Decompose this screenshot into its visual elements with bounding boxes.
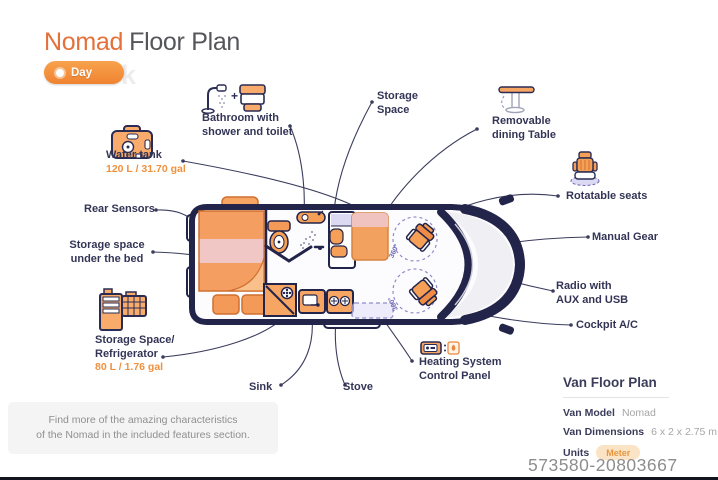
storage-space-line2: Space	[377, 104, 418, 118]
plus-icon: +	[231, 89, 238, 103]
label-radio: Radio with AUX and USB	[556, 280, 628, 307]
heating-system-zone	[352, 303, 393, 318]
storage-under-bed-line1: Storage space	[62, 239, 152, 253]
water-tank-name: Water tank	[106, 149, 186, 163]
storage-under-bed-line2: under the bed	[62, 253, 152, 267]
heating-panel-icon	[421, 342, 459, 354]
seat-icon	[571, 152, 599, 186]
label-heating: Heating System Control Panel	[419, 356, 502, 383]
label-fridge: Storage Space/ Refrigerator 80 L / 1.76 …	[95, 334, 174, 374]
van-model-value: Nomad	[622, 407, 656, 419]
heating-line2: Control Panel	[419, 370, 502, 384]
refrigerator-icon	[100, 289, 146, 330]
label-rotatable-seats: Rotatable seats	[566, 190, 647, 204]
info-box-line2: of the Nomad in the included features se…	[36, 428, 250, 443]
corner-cabinet	[264, 284, 296, 316]
label-cockpit-ac: Cockpit A/C	[576, 319, 638, 333]
van-dimensions-label: Van Dimensions	[563, 426, 644, 438]
van-dimensions-value: 6 x 2 x 2.75 m	[651, 426, 717, 438]
dining-table-line2: dining Table	[492, 129, 556, 143]
label-water-tank: Water tank 120 L / 31.70 gal	[106, 149, 186, 176]
label-stove: Stove	[343, 381, 373, 395]
bathroom-sink-counter	[297, 211, 325, 223]
label-storage-space: Storage Space	[377, 90, 418, 117]
dining-table-icon	[499, 87, 534, 113]
water-tank-capacity: 120 L / 31.70 gal	[106, 163, 186, 176]
dinette-bench	[329, 212, 355, 268]
van-model-label: Van Model	[563, 407, 615, 419]
label-storage-under-bed: Storage space under the bed	[62, 239, 152, 266]
side-mirror	[498, 323, 515, 336]
label-sink: Sink	[249, 381, 272, 395]
label-bathroom: Bathroom with shower and toilet	[202, 112, 292, 139]
spec-row-van-model: Van Model Nomad	[563, 407, 715, 419]
label-manual-gear: Manual Gear	[592, 231, 658, 245]
serial-number: 573580-20803667	[528, 455, 678, 476]
kitchen-sink-unit	[299, 290, 325, 313]
radio-line1: Radio with	[556, 280, 628, 294]
info-box-line1: Find more of the amazing characteristics	[48, 413, 237, 428]
label-dining-table: Removable dining Table	[492, 115, 556, 142]
dining-table-line1: Removable	[492, 115, 556, 129]
storage-space-line1: Storage	[377, 90, 418, 104]
stove-unit	[327, 290, 353, 313]
heating-line1: Heating System	[419, 356, 502, 370]
shower-icon	[202, 85, 226, 113]
radio-line2: AUX and USB	[556, 294, 628, 308]
fridge-line2: Refrigerator	[95, 348, 174, 362]
bathroom-line2: shower and toilet	[202, 126, 292, 140]
bed	[199, 210, 266, 292]
dining-table	[352, 213, 388, 260]
spec-row-van-dimensions: Van Dimensions 6 x 2 x 2.75 m	[563, 426, 715, 438]
fridge-capacity: 80 L / 1.76 gal	[95, 361, 174, 374]
van-spec-panel: Van Floor Plan Van Model Nomad Van Dimen…	[563, 375, 715, 467]
side-mirror	[498, 194, 515, 207]
spec-panel-divider	[563, 397, 669, 398]
info-box: Find more of the amazing characteristics…	[8, 402, 278, 454]
bathroom-line1: Bathroom with	[202, 112, 292, 126]
spec-panel-title: Van Floor Plan	[563, 375, 715, 390]
toilet-icon	[240, 85, 265, 111]
label-rear-sensors: Rear Sensors	[84, 203, 155, 217]
fridge-line1: Storage Space/	[95, 334, 174, 348]
